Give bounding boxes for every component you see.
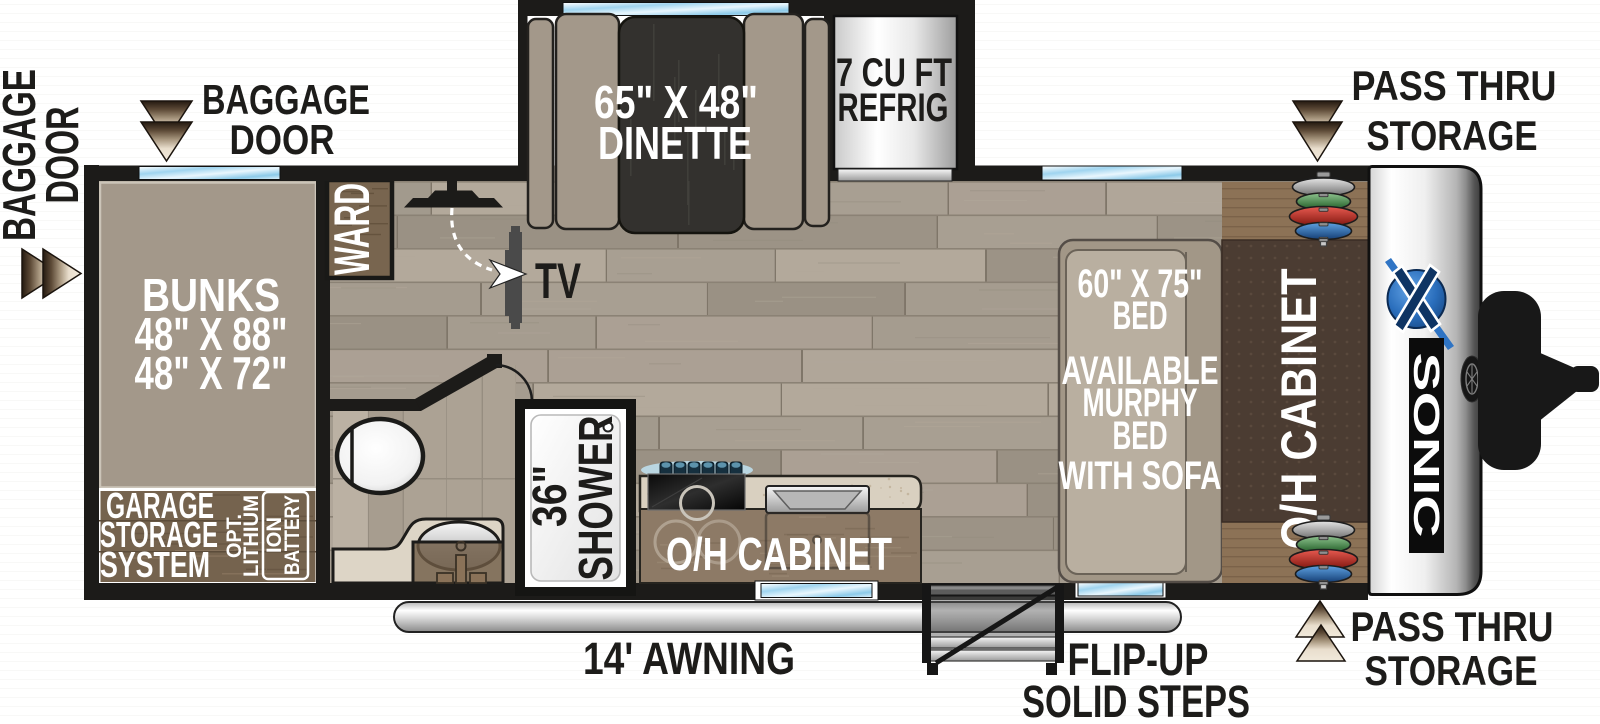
- svg-text:DOOR: DOOR: [36, 107, 88, 204]
- svg-text:O/H CABINET: O/H CABINET: [1271, 269, 1327, 550]
- svg-text:SHOWER: SHOWER: [570, 416, 623, 581]
- svg-text:LITHIUM: LITHIUM: [240, 495, 263, 577]
- svg-text:PASS THRU: PASS THRU: [1351, 603, 1554, 650]
- svg-text:SONIC: SONIC: [1406, 353, 1447, 538]
- svg-text:O/H CABINET: O/H CABINET: [666, 528, 892, 580]
- svg-text:WITH SOFA: WITH SOFA: [1059, 454, 1222, 498]
- svg-text:BED: BED: [1113, 294, 1168, 338]
- svg-text:PASS THRU: PASS THRU: [1352, 62, 1557, 109]
- svg-text:TV: TV: [535, 253, 581, 309]
- svg-text:SYSTEM: SYSTEM: [100, 544, 210, 585]
- svg-text:DINETTE: DINETTE: [598, 117, 752, 169]
- svg-text:14' AWNING: 14' AWNING: [583, 633, 795, 684]
- svg-text:BED: BED: [1113, 414, 1168, 458]
- svg-text:SOLID STEPS: SOLID STEPS: [1022, 676, 1250, 719]
- svg-text:48" X 72": 48" X 72": [135, 347, 288, 399]
- svg-text:REFRIG: REFRIG: [838, 86, 949, 130]
- svg-text:WARD: WARD: [324, 183, 380, 275]
- svg-text:DOOR: DOOR: [230, 116, 335, 163]
- svg-text:STORAGE: STORAGE: [1365, 647, 1538, 694]
- svg-text:STORAGE: STORAGE: [1367, 112, 1538, 159]
- svg-text:BATTERY: BATTERY: [281, 495, 304, 575]
